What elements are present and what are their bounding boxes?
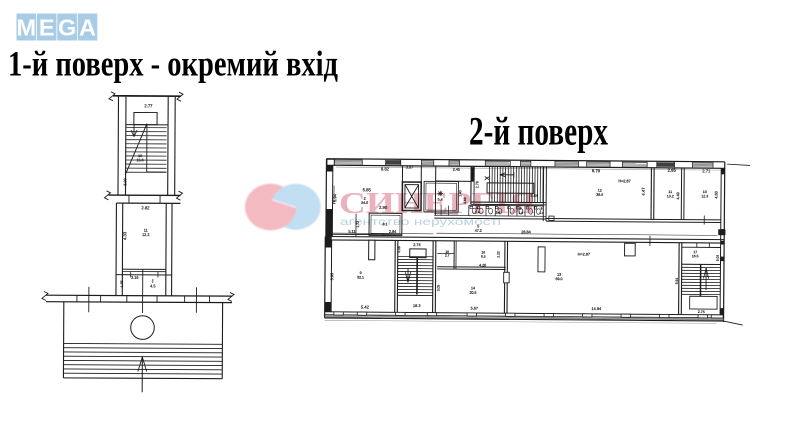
svg-text:1.4: 1.4 — [518, 211, 523, 215]
svg-text:2.7: 2.7 — [445, 254, 450, 258]
svg-text:5.91: 5.91 — [675, 278, 679, 285]
svg-text:2.75: 2.75 — [698, 310, 705, 314]
svg-text:13: 13 — [557, 273, 561, 277]
svg-text:4.26: 4.26 — [479, 263, 486, 267]
svg-text:20.5: 20.5 — [469, 291, 476, 295]
svg-text:34.0: 34.0 — [361, 201, 368, 205]
svg-text:5.42: 5.42 — [361, 304, 370, 309]
svg-text:4.33: 4.33 — [122, 231, 127, 240]
svg-text:6.5: 6.5 — [481, 255, 486, 259]
svg-text:2.22: 2.22 — [497, 251, 501, 258]
svg-text:2.74: 2.74 — [413, 243, 420, 247]
svg-text:28.84: 28.84 — [521, 230, 531, 234]
svg-text:1.4: 1.4 — [475, 210, 480, 214]
svg-text:8.79: 8.79 — [592, 168, 601, 173]
svg-text:5.06: 5.06 — [397, 246, 401, 253]
svg-text:4.5: 4.5 — [150, 284, 155, 288]
svg-text:14: 14 — [471, 286, 475, 290]
svg-text:5.95: 5.95 — [330, 273, 334, 280]
svg-text:3.05: 3.05 — [436, 285, 440, 292]
svg-text:5.67: 5.67 — [471, 307, 478, 311]
svg-text:15.6: 15.6 — [137, 158, 144, 162]
svg-text:1.4: 1.4 — [539, 211, 544, 215]
svg-text:3.07: 3.07 — [406, 166, 413, 170]
svg-text:H=2.87: H=2.87 — [618, 179, 630, 183]
svg-text:14.94: 14.94 — [592, 307, 602, 311]
svg-text:A: A — [79, 14, 96, 40]
svg-text:2.45: 2.45 — [453, 168, 460, 172]
svg-text:38.5: 38.5 — [596, 193, 603, 197]
svg-text:M: M — [17, 14, 37, 40]
svg-text:11: 11 — [144, 228, 148, 232]
svg-text:4.49: 4.49 — [676, 192, 680, 199]
svg-text:8.82: 8.82 — [381, 166, 390, 171]
svg-text:E: E — [39, 14, 55, 40]
svg-text:69.0: 69.0 — [556, 277, 563, 281]
svg-text:18.3: 18.3 — [413, 304, 420, 308]
svg-text:1.4: 1.4 — [496, 211, 501, 215]
svg-text:2.90: 2.90 — [379, 205, 388, 210]
svg-text:12.3: 12.3 — [701, 194, 708, 198]
svg-text:5.64: 5.64 — [531, 194, 538, 198]
svg-text:4.69: 4.69 — [463, 197, 467, 204]
svg-text:2.71: 2.71 — [702, 168, 711, 173]
svg-text:2-й поверх: 2-й поверх — [469, 109, 608, 154]
svg-text:4.50: 4.50 — [714, 191, 718, 198]
svg-text:1.72: 1.72 — [356, 221, 360, 228]
svg-text:2.84: 2.84 — [389, 230, 396, 234]
svg-text:5.11: 5.11 — [348, 230, 355, 234]
svg-text:2.85: 2.85 — [668, 168, 677, 173]
svg-text:5.94: 5.94 — [332, 193, 337, 202]
svg-text:1.35: 1.35 — [120, 280, 124, 287]
svg-text:3.16: 3.16 — [131, 276, 138, 280]
svg-text:5.4: 5.4 — [438, 198, 443, 202]
svg-text:5.85: 5.85 — [363, 187, 372, 192]
svg-text:6.05: 6.05 — [716, 255, 720, 261]
svg-text:2.77: 2.77 — [144, 103, 153, 108]
svg-text:32.1: 32.1 — [357, 275, 364, 279]
svg-text:2.82: 2.82 — [141, 205, 150, 210]
svg-text:12.2: 12.2 — [142, 233, 149, 237]
svg-text:2.78: 2.78 — [475, 181, 479, 188]
svg-text:H=2.87: H=2.87 — [578, 252, 590, 256]
svg-text:47.2: 47.2 — [475, 229, 482, 233]
svg-text:1.40: 1.40 — [458, 190, 462, 197]
svg-text:13.2: 13.2 — [667, 194, 674, 198]
svg-text:8.1: 8.1 — [382, 222, 387, 226]
svg-text:16.5: 16.5 — [692, 254, 699, 258]
svg-text:1-й поверх - окремий вхід: 1-й поверх - окремий вхід — [8, 44, 338, 84]
svg-text:4.47: 4.47 — [641, 187, 646, 196]
svg-text:G: G — [58, 14, 76, 40]
svg-text:5.99: 5.99 — [123, 178, 127, 185]
